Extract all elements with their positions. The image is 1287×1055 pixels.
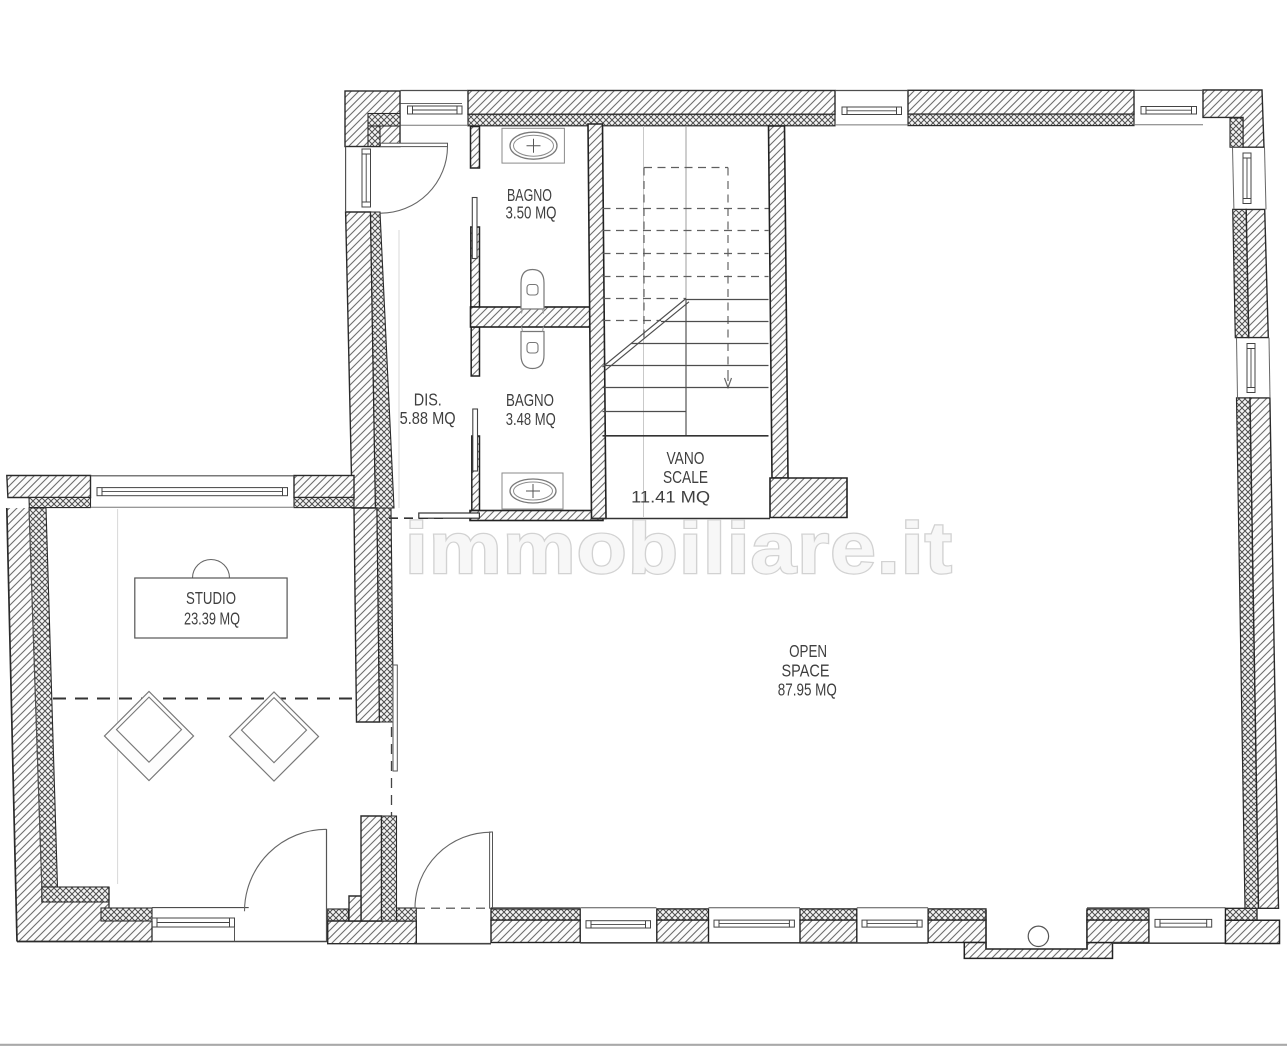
svg-text:23.39 MQ: 23.39 MQ: [184, 609, 240, 629]
svg-text:87.95 MQ: 87.95 MQ: [778, 680, 837, 700]
svg-text:OPEN: OPEN: [789, 641, 827, 661]
svg-text:STUDIO: STUDIO: [186, 588, 236, 608]
svg-text:SPACE: SPACE: [782, 661, 830, 681]
svg-text:3.48 MQ: 3.48 MQ: [506, 409, 556, 429]
svg-text:11.41 MQ: 11.41 MQ: [631, 488, 710, 507]
svg-text:DIS.: DIS.: [414, 390, 442, 410]
svg-text:BAGNO: BAGNO: [506, 390, 554, 410]
svg-text:3.50 MQ: 3.50 MQ: [506, 202, 557, 222]
svg-text:immobiliare.it: immobiliare.it: [405, 509, 953, 589]
svg-text:SCALE: SCALE: [663, 467, 708, 487]
svg-text:5.88 MQ: 5.88 MQ: [400, 408, 456, 428]
svg-text:VANO: VANO: [667, 448, 705, 468]
